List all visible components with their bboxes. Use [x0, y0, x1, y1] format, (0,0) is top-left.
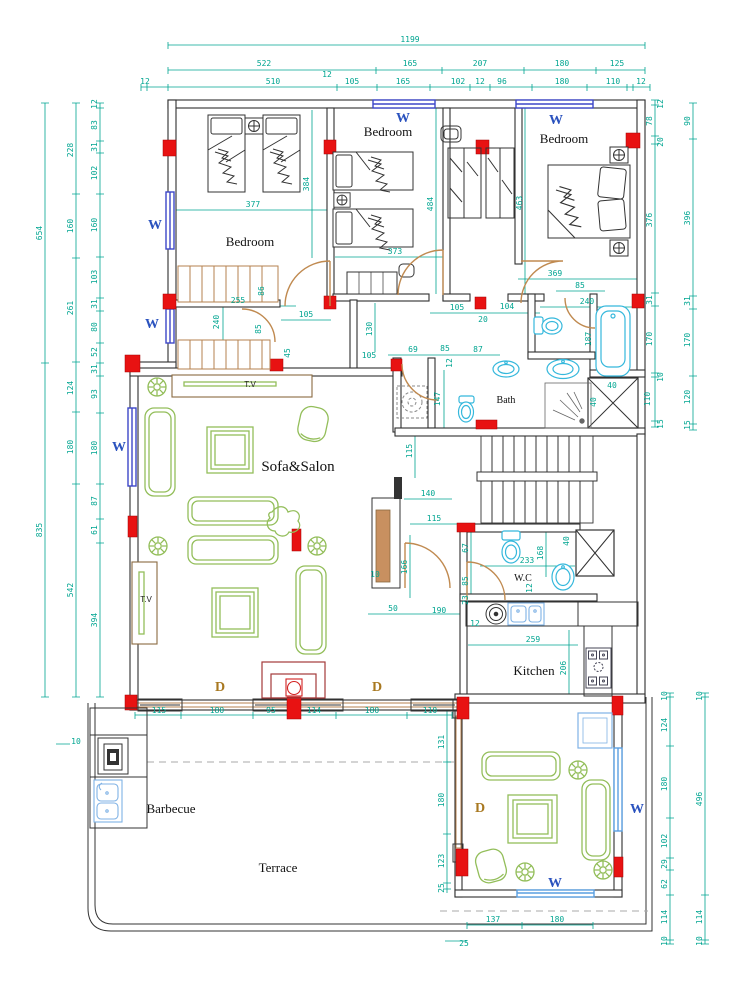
dimension-label: 396: [683, 211, 692, 226]
dimension-label: 114: [307, 706, 322, 715]
tv-label: T.V: [140, 595, 152, 604]
dimension-label: 78: [645, 116, 654, 126]
plant: [148, 378, 166, 396]
dimension-label: 180: [365, 706, 380, 715]
dimension-label: 125: [610, 59, 625, 68]
dimension-label: 95: [266, 706, 276, 715]
dimension-label: 12: [322, 70, 332, 79]
dimension-label: 124: [66, 381, 75, 396]
plant: [308, 537, 326, 555]
dimension-label: 10: [656, 372, 665, 382]
room-sm-label: Bath: [497, 395, 516, 406]
dimension-label: 10: [660, 691, 669, 701]
dimension-label: 114: [660, 910, 669, 925]
toilet: [459, 396, 475, 422]
dimension-label: 31: [90, 364, 99, 374]
dimension-label: 15: [656, 419, 665, 429]
dimension-label: 140: [421, 489, 436, 498]
barbecue-sink: [94, 780, 122, 822]
sink: [552, 564, 574, 590]
dimension-label: 31: [645, 295, 654, 305]
dimension-label: 240: [212, 315, 221, 330]
door-hall: [405, 543, 450, 588]
dimension-label: 96: [497, 77, 507, 86]
dimension-label: 67: [461, 543, 470, 553]
dimension-label: 25: [459, 939, 469, 948]
dimension-label: 384: [302, 177, 311, 192]
dimension-label: 120: [683, 390, 692, 405]
dimension-label: 86: [257, 286, 266, 296]
dimension-label: 259: [526, 635, 541, 644]
dimension-label: 114: [695, 910, 704, 925]
dimension-label: 190: [432, 606, 447, 615]
dimension-label: 40: [589, 397, 598, 407]
dimension-label: 166: [400, 560, 409, 575]
dimension-label: 10: [71, 737, 81, 746]
dimension-label: 115: [427, 514, 442, 523]
plant: [516, 863, 534, 881]
room-sm-label: W.C: [514, 573, 532, 584]
dimension-label: 23: [461, 595, 470, 605]
plant: [267, 507, 299, 536]
dimension-label: 105: [299, 310, 314, 319]
dimension-label: 168: [536, 546, 545, 561]
plant: [569, 761, 587, 779]
dimension-label: 40: [562, 536, 571, 546]
dimension-label: 12: [636, 77, 646, 86]
dimension-label: 45: [283, 348, 292, 358]
dimension-label: 377: [246, 200, 261, 209]
dimension-label: 90: [683, 116, 692, 126]
dimension-label: 170: [645, 332, 654, 347]
dimension-label: 180: [90, 441, 99, 456]
dimension-label: 115: [405, 444, 414, 459]
dimension-label: 15: [683, 420, 692, 430]
toilet: [534, 317, 562, 334]
dimension-label: 496: [695, 792, 704, 807]
dimension-label: 165: [403, 59, 418, 68]
table: [207, 427, 253, 473]
dimension-label: 12: [90, 99, 99, 109]
fireplace: [262, 662, 325, 698]
dimension-label: 187: [584, 332, 593, 347]
dimension-label: 10: [695, 936, 704, 946]
garden-room-furniture: [473, 713, 612, 885]
armchair: [296, 404, 330, 443]
staircase: [477, 436, 597, 523]
room-lg-label: Sofa&Salon: [261, 459, 335, 475]
w-label: W: [396, 111, 410, 126]
dimension-label: 240: [580, 297, 595, 306]
dimension-label: 12: [656, 99, 665, 109]
dimension-label: 10: [660, 936, 669, 946]
dimension-label: 180: [437, 793, 446, 808]
room-label: Barbecue: [146, 801, 195, 816]
dimension-label: 104: [500, 302, 515, 311]
dimension-label: 69: [408, 345, 418, 354]
dimension-label: 102: [90, 166, 99, 181]
dimension-label: 123: [437, 854, 446, 869]
dimension-label: 170: [683, 333, 692, 348]
dimension-label: 85: [575, 281, 585, 290]
dimension-label: 180: [550, 915, 565, 924]
dimension-label: 105: [450, 303, 465, 312]
room-label: Kitchen: [513, 663, 555, 678]
dimension-label: 29: [660, 859, 669, 869]
toilet: [502, 531, 520, 563]
dimension-label: 12: [445, 358, 454, 368]
dimension-label: 124: [660, 718, 669, 733]
bathtub: [596, 306, 630, 376]
dimension-label: 12: [470, 619, 480, 628]
dimension-label: 160: [66, 219, 75, 234]
shower: [545, 383, 591, 428]
sink: [493, 361, 519, 377]
dimension-label: 228: [66, 143, 75, 158]
dimension-label: 147: [433, 392, 442, 407]
sink: [547, 360, 579, 379]
dimension-label: 110: [643, 392, 652, 407]
room-label: Bedroom: [226, 234, 274, 249]
table: [508, 795, 557, 843]
dimension-label: 103: [90, 270, 99, 285]
dimension-label: 131: [437, 735, 446, 750]
dimension-label: 87: [473, 345, 483, 354]
dimension-label: 542: [66, 583, 75, 598]
dimension-label: 20: [656, 137, 665, 147]
dimension-label: 25: [437, 883, 446, 893]
room-label: Bedroom: [540, 131, 588, 146]
dimension-label: 20: [478, 315, 488, 324]
dimension-label: 85: [254, 324, 263, 334]
dimension-label: 93: [90, 389, 99, 399]
stove: [586, 648, 611, 688]
dimension-label: 165: [396, 77, 411, 86]
dimension-label: 12: [140, 77, 150, 86]
w-label: W: [630, 802, 644, 817]
room-label: Bedroom: [364, 124, 412, 139]
dimension-label: 105: [362, 351, 377, 360]
dimension-label: 522: [257, 59, 272, 68]
dimension-label: 180: [555, 77, 570, 86]
dimension-label: 31: [683, 296, 692, 306]
dimension-label: 510: [266, 77, 281, 86]
d-label: D: [372, 680, 382, 695]
dimension-label: 463: [515, 196, 524, 211]
table: [212, 588, 258, 637]
d-label: D: [475, 801, 485, 816]
dimension-label: 31: [90, 142, 99, 152]
dimension-label: 110: [606, 77, 621, 86]
dimension-label: 160: [90, 218, 99, 233]
w-label: W: [148, 218, 162, 233]
kitchen-sink: [508, 603, 544, 625]
dimension-label: 130: [365, 322, 374, 337]
dimension-label: 180: [660, 777, 669, 792]
d-label: D: [215, 680, 225, 695]
dimension-label: 115: [152, 706, 167, 715]
room-label: Terrace: [259, 860, 298, 875]
dimension-label: 85: [461, 576, 470, 586]
barbecue-unit: [90, 708, 147, 828]
dimension-label: 206: [559, 661, 568, 676]
dimension-label: 180: [210, 706, 225, 715]
dimension-label: 40: [607, 381, 617, 390]
plant: [149, 537, 167, 555]
dimension-label: 207: [473, 59, 488, 68]
dimension-label: 1199: [400, 35, 419, 44]
terrace-dashed-line: [147, 762, 648, 911]
tv-label: T.V: [244, 380, 256, 389]
dimension-label: 180: [555, 59, 570, 68]
dimension-label: 10: [370, 570, 380, 579]
dimension-label: 105: [345, 77, 360, 86]
dimension-label: 61: [90, 525, 99, 535]
door-bedroom1: [285, 261, 330, 306]
dimension-label: 654: [35, 226, 44, 241]
dimension-label: 373: [388, 247, 403, 256]
dimension-label: 137: [486, 915, 501, 924]
dimension-label: 10: [695, 691, 704, 701]
dimension-label: 484: [426, 197, 435, 212]
dimension-label: 261: [66, 301, 75, 316]
dimension-label: 31: [90, 299, 99, 309]
dimension-label: 394: [90, 613, 99, 628]
dimension-label: 12: [525, 583, 534, 593]
floor-plan-page: 1199522165207180125125101210516510212961…: [0, 0, 751, 1000]
kitchen: [466, 602, 638, 696]
dimension-label: 102: [451, 77, 466, 86]
dimension-label: 83: [90, 120, 99, 130]
w-label: W: [145, 317, 159, 332]
plan-svg: 1199522165207180125125101210516510212961…: [0, 0, 751, 1000]
dimension-label: 52: [90, 347, 99, 357]
dimension-label: 255: [231, 296, 246, 305]
dimension-label: 835: [35, 523, 44, 538]
dimension-label: 80: [90, 322, 99, 332]
plant: [594, 861, 612, 879]
dimension-label: 102: [660, 834, 669, 849]
dimension-label: 85: [440, 344, 450, 353]
w-label: W: [112, 440, 126, 455]
dimension-label: 233: [520, 556, 535, 565]
dimension-label: 376: [645, 213, 654, 228]
dimension-label: 50: [388, 604, 398, 613]
dimension-label: 62: [660, 879, 669, 889]
wall-stub: [394, 477, 402, 499]
dimension-label: 180: [66, 440, 75, 455]
w-label: W: [548, 876, 562, 891]
dimension-label: 369: [548, 269, 563, 278]
dimension-label: 87: [90, 496, 99, 506]
armchair: [473, 847, 508, 885]
dimension-label: 12: [475, 77, 485, 86]
w-label: W: [549, 113, 563, 128]
kitchen-washer: [486, 604, 506, 624]
dimension-label: 110: [423, 706, 438, 715]
